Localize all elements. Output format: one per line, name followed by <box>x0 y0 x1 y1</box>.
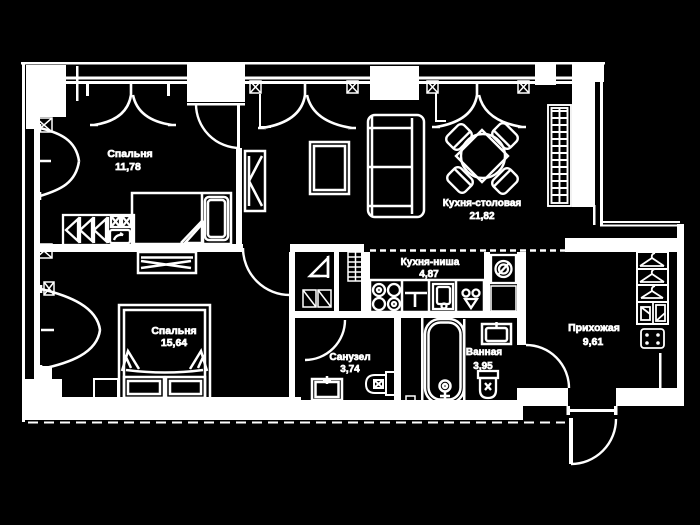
svg-text:11,78: 11,78 <box>115 161 141 173</box>
svg-text:9,61: 9,61 <box>583 336 604 348</box>
svg-text:15,64: 15,64 <box>161 337 187 349</box>
svg-text:Прихожая: Прихожая <box>568 322 620 334</box>
svg-text:3,74: 3,74 <box>340 364 360 375</box>
svg-text:Санузел: Санузел <box>329 352 370 363</box>
svg-text:Кухня-столовая: Кухня-столовая <box>443 198 522 209</box>
svg-text:Спальня: Спальня <box>151 325 196 337</box>
svg-text:Ванная: Ванная <box>466 347 502 358</box>
svg-text:4,87: 4,87 <box>419 269 439 280</box>
svg-text:21,82: 21,82 <box>469 211 494 222</box>
svg-text:Спальня: Спальня <box>107 148 152 160</box>
svg-text:Кухня-ниша: Кухня-ниша <box>401 257 460 268</box>
svg-text:3,95: 3,95 <box>473 361 493 372</box>
